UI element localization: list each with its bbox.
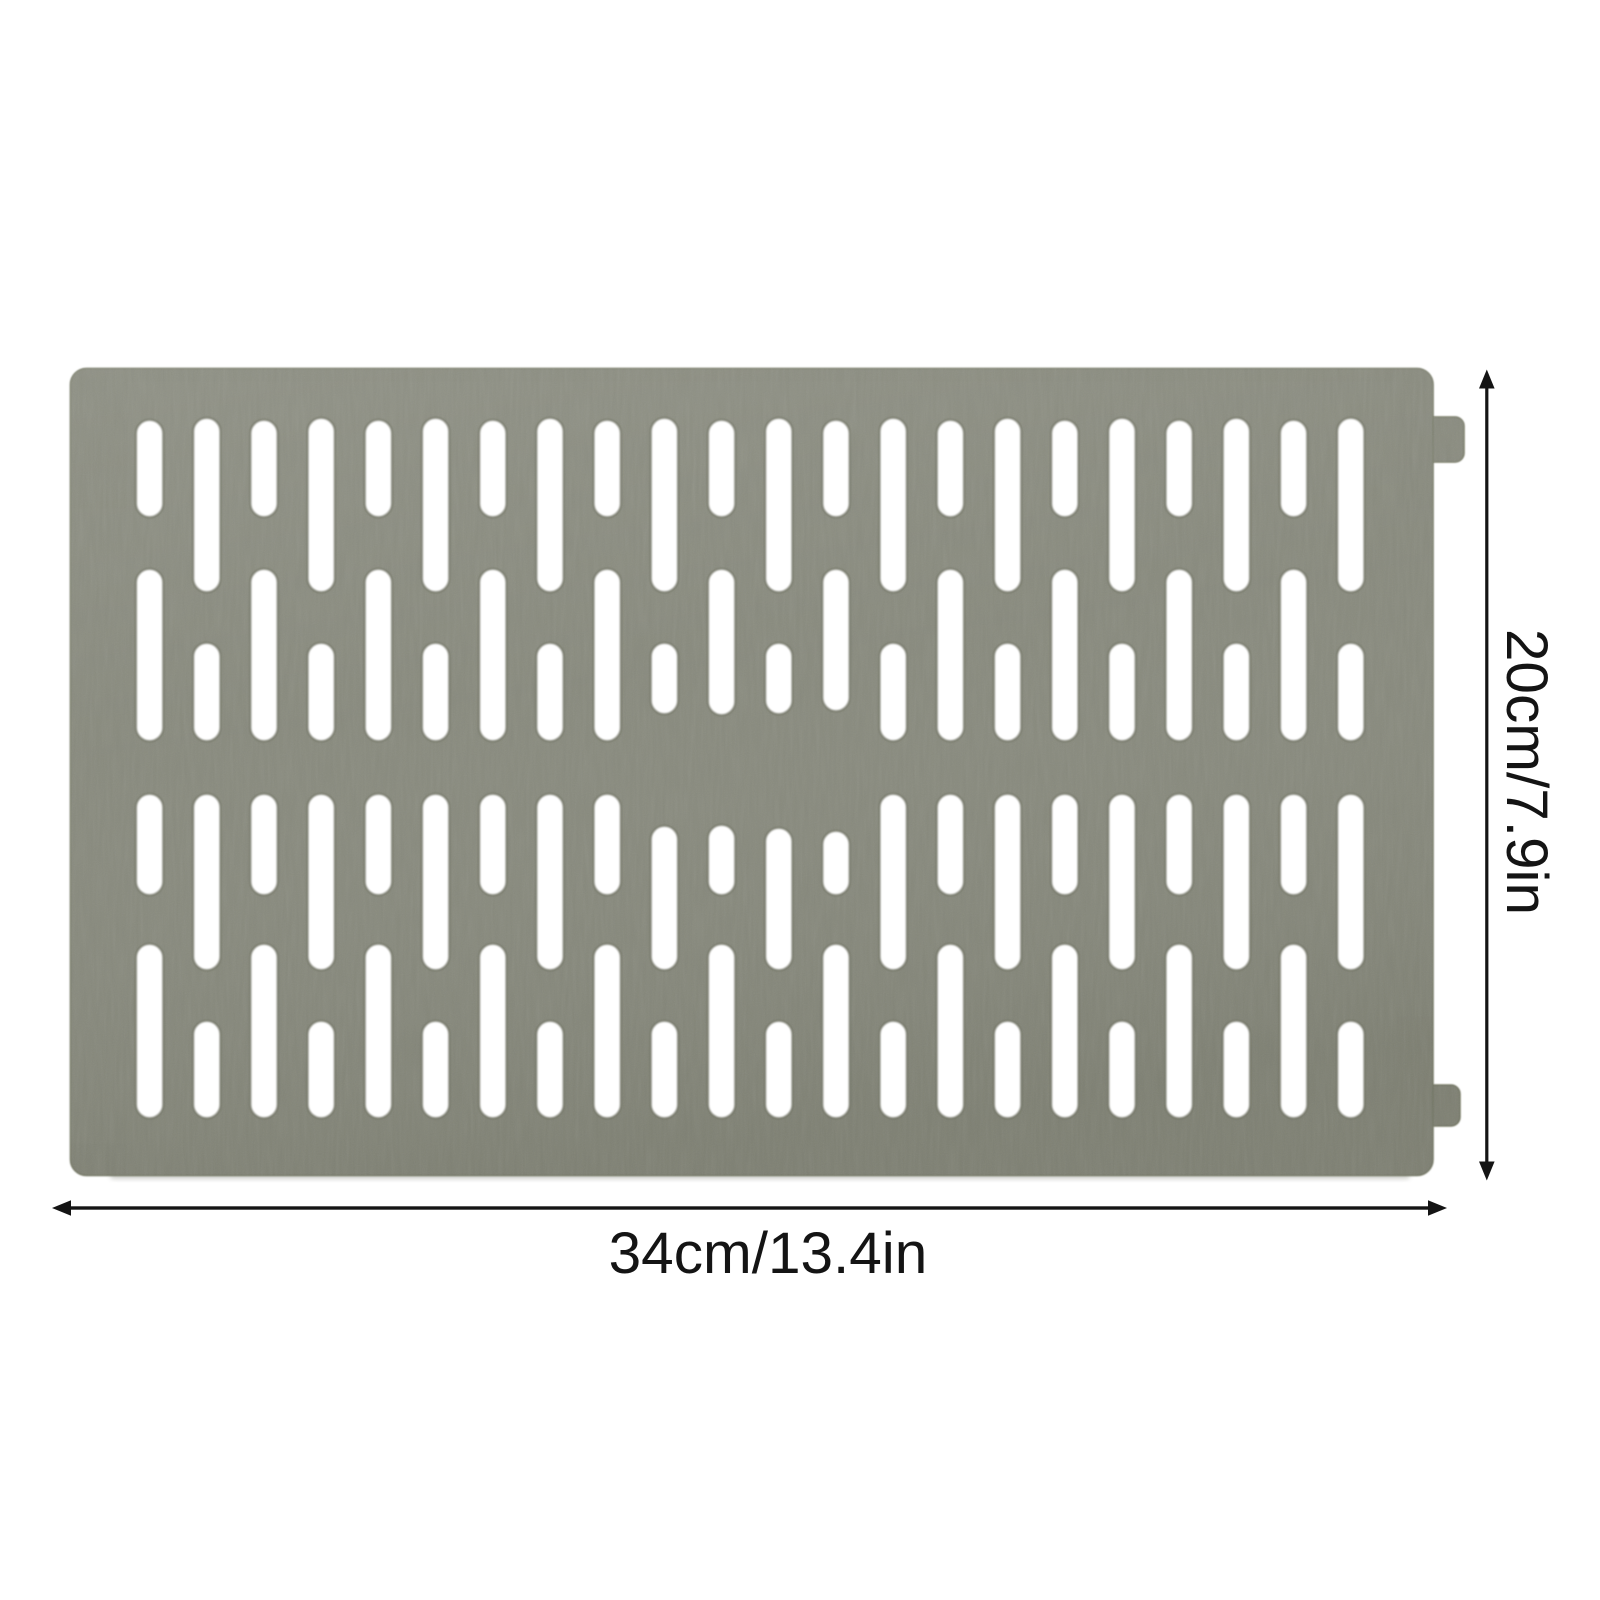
svg-text:34cm/13.4in: 34cm/13.4in [609, 1221, 928, 1286]
svg-text:20cm/7.9in: 20cm/7.9in [1494, 629, 1559, 915]
